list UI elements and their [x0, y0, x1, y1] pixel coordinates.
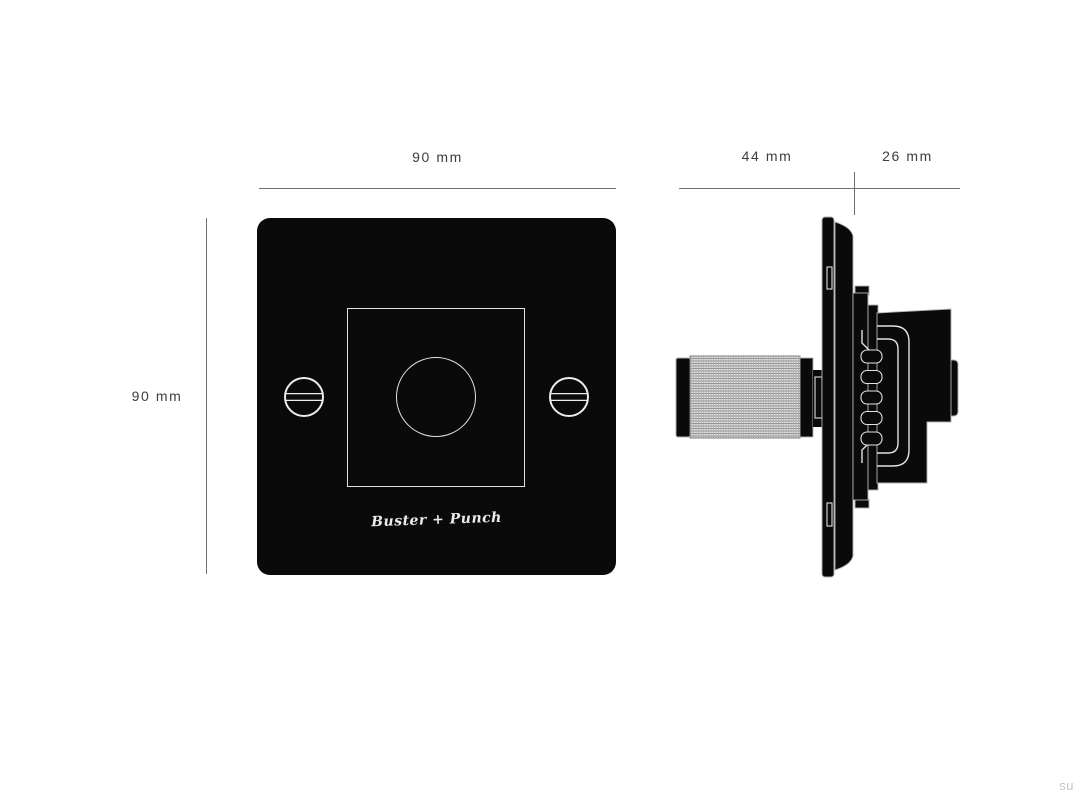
dim-line-front-width	[259, 188, 616, 189]
watermark-text: su	[1059, 778, 1074, 793]
screw-left-icon	[282, 375, 326, 419]
brand-logo: Buster + Punch	[257, 506, 616, 535]
dim-label-front-width: 90 mm	[259, 149, 616, 165]
side-faceplate	[822, 217, 853, 577]
dim-line-side-depth	[679, 188, 960, 189]
side-knob	[676, 356, 824, 438]
knurled-grip	[690, 356, 800, 438]
faceplate-front-view: Buster + Punch	[257, 218, 616, 575]
dimmer-switch-technical-drawing: 90 mm 90 mm 44 mm 26 mm Buster + Punch	[0, 0, 1077, 794]
side-mounting-mechanism	[853, 286, 958, 508]
dim-label-front-height: 90 mm	[107, 388, 207, 404]
dim-label-back-depth: 26 mm	[855, 148, 960, 164]
dim-label-knob-depth: 44 mm	[679, 148, 855, 164]
screw-right-icon	[547, 375, 591, 419]
dimmer-body	[877, 309, 951, 483]
side-view-drawing	[660, 200, 980, 600]
dimmer-knob-outline	[396, 357, 476, 437]
